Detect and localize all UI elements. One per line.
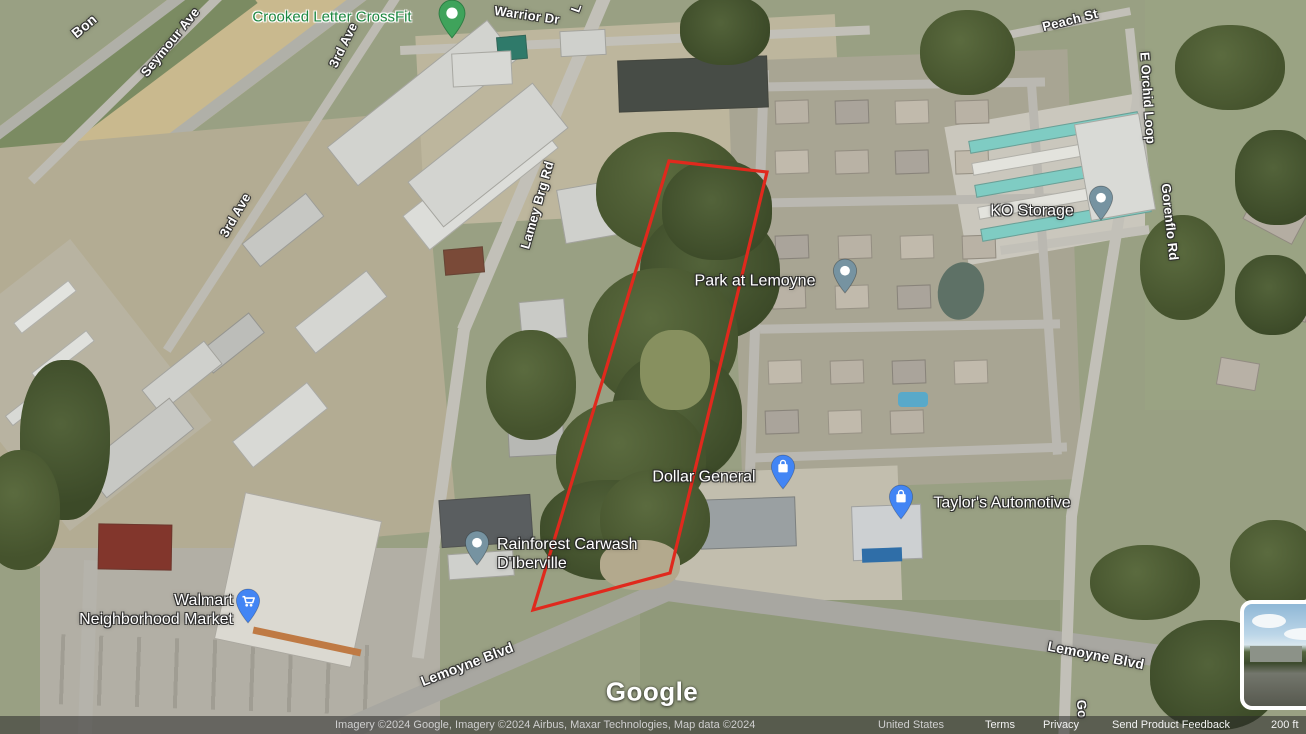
poi-label-ko-storage[interactable]: KO Storage [990,203,1074,222]
preview-building [1250,646,1302,662]
street-view-preview[interactable] [1240,600,1306,710]
cloud [1252,614,1286,628]
map-viewport[interactable]: Bon Seymour Ave 3rd Ave 3rd Ave Warrior … [0,0,1306,734]
poi-label-park-at-lemoyne[interactable]: Park at Lemoyne [695,273,816,292]
poi-label-crossfit[interactable]: Crooked Letter CrossFit [252,9,411,26]
privacy-link[interactable]: Privacy [1043,716,1079,734]
cloud [1284,628,1306,640]
imagery-credits: Imagery ©2024 Google, Imagery ©2024 Airb… [335,716,755,734]
poi-label-rainforest-carwash[interactable]: Rainforest Carwash D'Iberville [497,536,638,574]
poi-label-line: Rainforest Carwash [497,536,638,555]
attribution-bar: Imagery ©2024 Google, Imagery ©2024 Airb… [0,716,1306,734]
poi-label-line: Walmart [30,592,233,611]
poi-label-dollar-general[interactable]: Dollar General [652,469,755,488]
poi-label-taylors-automotive[interactable]: Taylor's Automotive [933,495,1070,514]
google-logo-watermark[interactable]: Google [606,677,699,708]
poi-label-walmart[interactable]: Walmart Neighborhood Market [30,592,233,630]
country-label: United States [878,716,944,734]
poi-label-line: Neighborhood Market [30,611,233,630]
terms-link[interactable]: Terms [985,716,1015,734]
feedback-link[interactable]: Send Product Feedback [1112,716,1230,734]
scale-label: 200 ft [1271,716,1299,734]
poi-label-line: D'Iberville [497,555,638,574]
